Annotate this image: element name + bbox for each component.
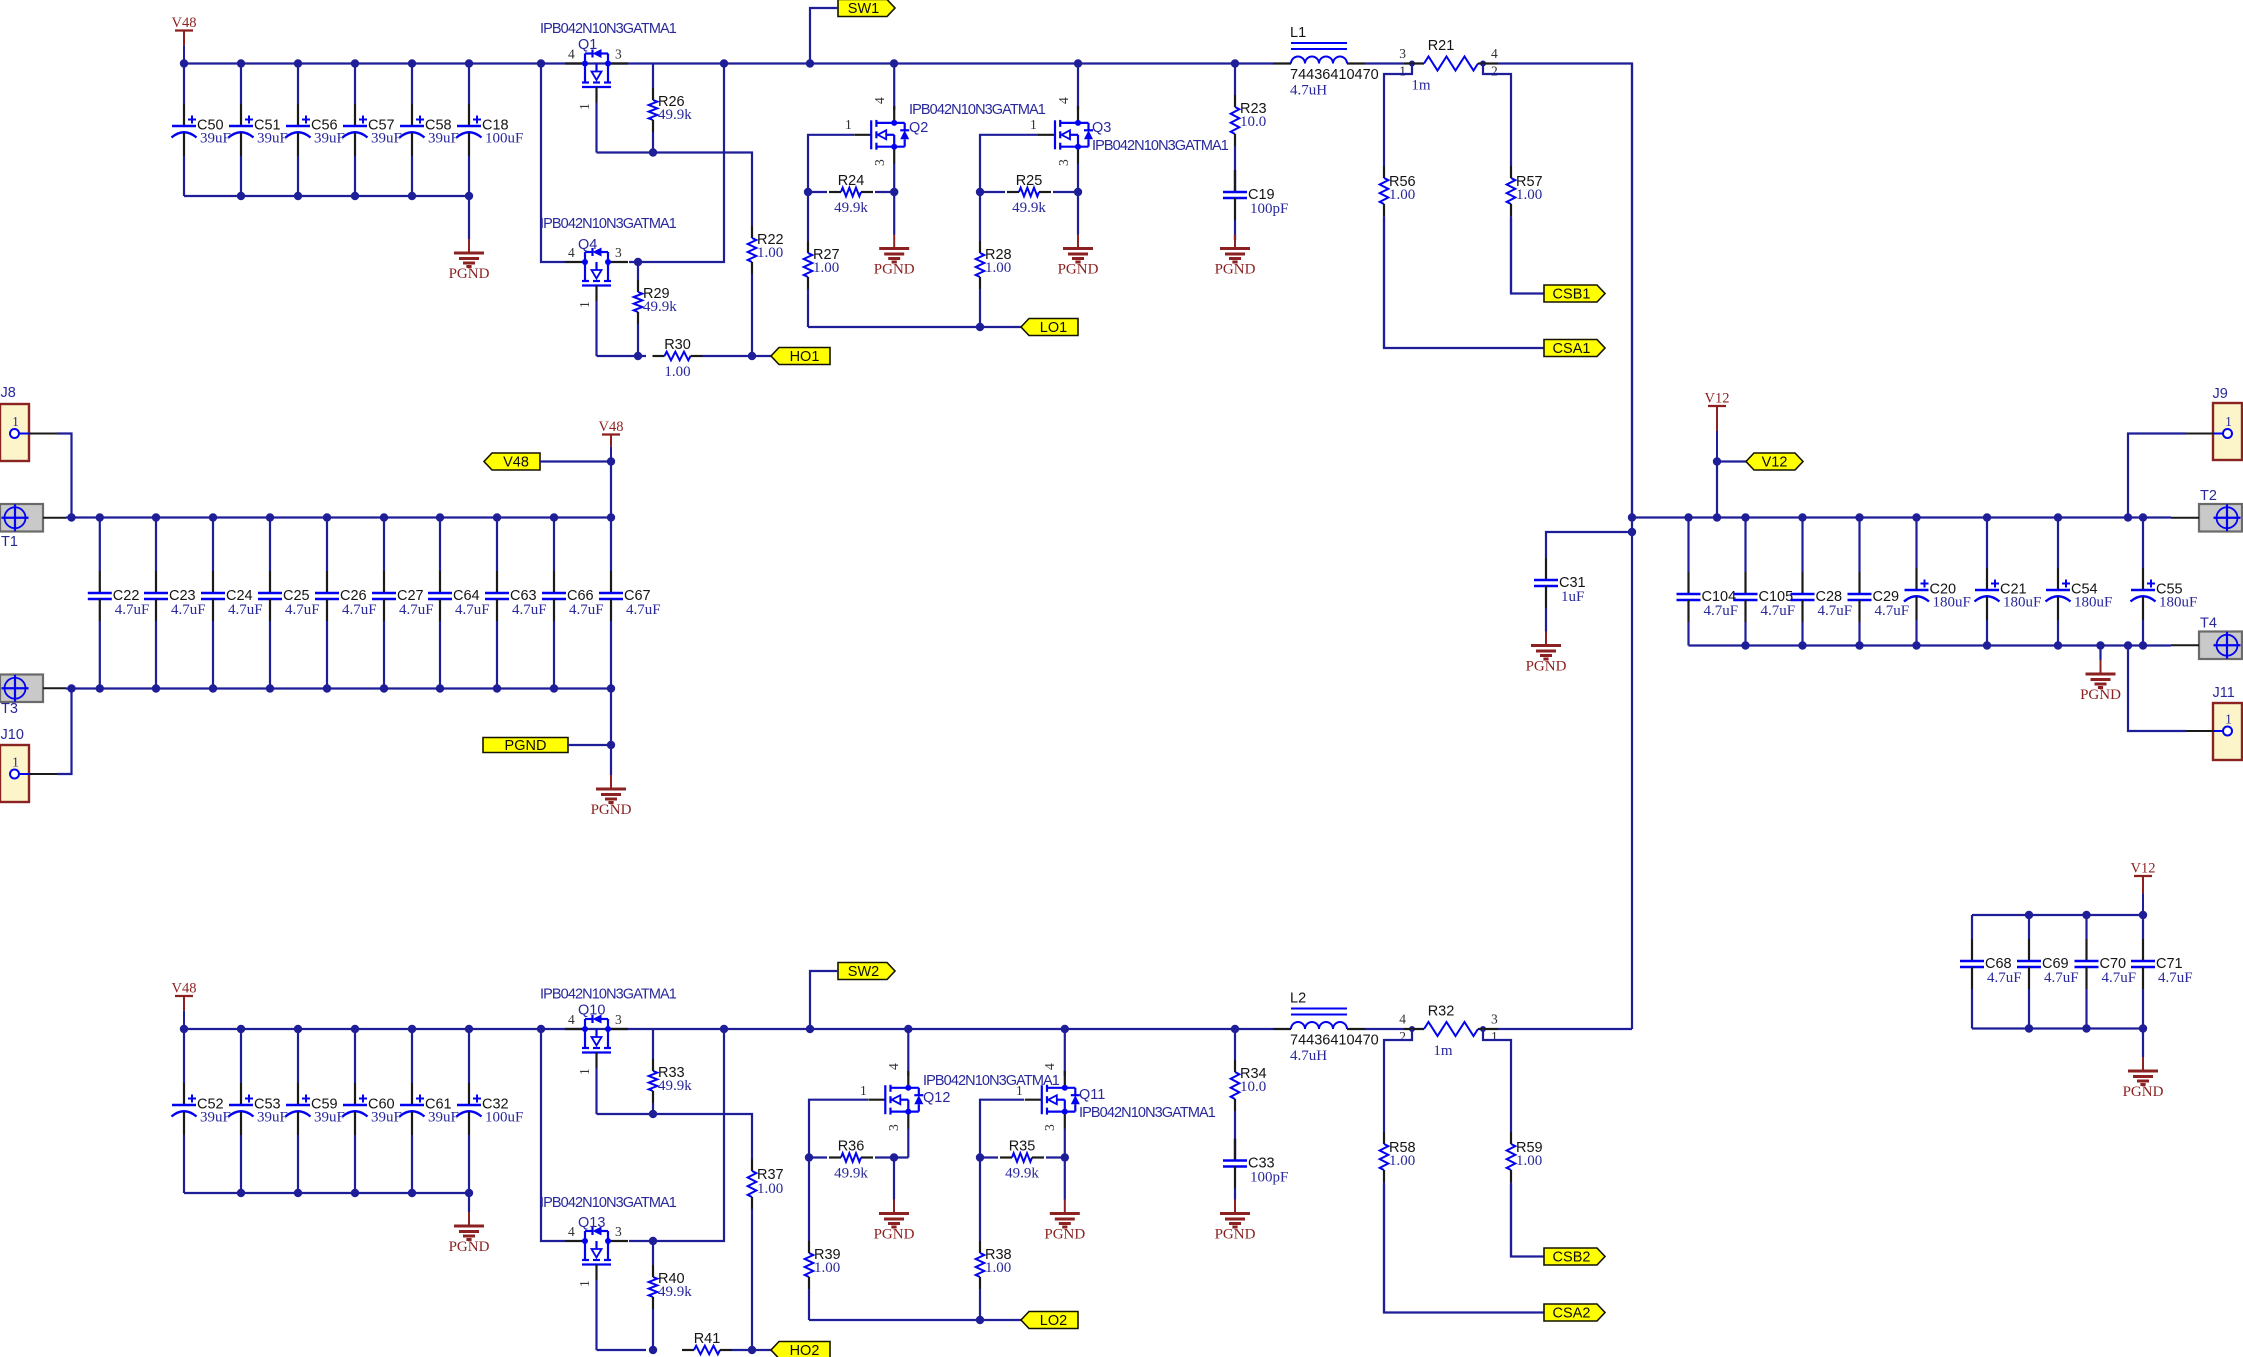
svg-text:3: 3: [872, 159, 887, 166]
svg-text:1: 1: [577, 301, 592, 308]
svg-text:180uF: 180uF: [2159, 595, 2197, 611]
svg-text:1m: 1m: [1411, 78, 1431, 94]
svg-text:1uF: 1uF: [1561, 589, 1584, 605]
svg-text:IPB042N10N3GATMA1: IPB042N10N3GATMA1: [540, 1195, 677, 1211]
svg-text:39uF: 39uF: [200, 131, 231, 147]
svg-text:4: 4: [568, 245, 575, 260]
svg-text:PGND: PGND: [2123, 1084, 2164, 1100]
svg-text:T3: T3: [1, 701, 18, 717]
svg-text:1.00: 1.00: [1516, 1153, 1542, 1169]
svg-text:39uF: 39uF: [371, 1110, 402, 1126]
svg-text:IPB042N10N3GATMA1: IPB042N10N3GATMA1: [909, 102, 1046, 118]
svg-text:4: 4: [1056, 97, 1071, 104]
svg-text:180uF: 180uF: [2003, 595, 2041, 611]
svg-text:4.7uF: 4.7uF: [342, 602, 377, 618]
svg-text:3: 3: [1056, 159, 1071, 166]
svg-text:R41: R41: [694, 1331, 721, 1347]
svg-text:4.7uF: 4.7uF: [626, 602, 661, 618]
svg-text:1.00: 1.00: [985, 1260, 1011, 1276]
svg-text:4.7uF: 4.7uF: [115, 602, 150, 618]
svg-text:39uF: 39uF: [314, 1110, 345, 1126]
svg-text:180uF: 180uF: [2074, 595, 2112, 611]
svg-text:4: 4: [568, 1012, 575, 1027]
svg-text:PGND: PGND: [2080, 687, 2121, 703]
svg-text:1.00: 1.00: [757, 245, 783, 261]
svg-text:PGND: PGND: [449, 266, 490, 282]
svg-text:R32: R32: [1428, 1004, 1455, 1020]
svg-text:PGND: PGND: [1215, 262, 1256, 278]
svg-text:HO2: HO2: [790, 1343, 820, 1357]
svg-text:4.7uF: 4.7uF: [512, 602, 547, 618]
svg-text:4: 4: [1491, 46, 1498, 61]
svg-text:49.9k: 49.9k: [1012, 200, 1046, 216]
svg-text:39uF: 39uF: [428, 131, 459, 147]
svg-text:L1: L1: [1290, 25, 1306, 41]
svg-text:1: 1: [577, 1068, 592, 1075]
svg-text:IPB042N10N3GATMA1: IPB042N10N3GATMA1: [540, 21, 677, 37]
svg-text:1: 1: [12, 414, 19, 429]
svg-text:V48: V48: [172, 15, 197, 31]
svg-text:J8: J8: [1, 385, 16, 401]
svg-text:V48: V48: [503, 455, 529, 471]
svg-text:3: 3: [1491, 1012, 1498, 1027]
svg-text:4.7uF: 4.7uF: [2102, 970, 2137, 986]
svg-text:49.9k: 49.9k: [834, 1166, 868, 1182]
svg-text:2: 2: [1491, 64, 1498, 79]
svg-text:100pF: 100pF: [1250, 1170, 1288, 1186]
svg-text:100pF: 100pF: [1250, 201, 1288, 217]
svg-text:J11: J11: [2213, 685, 2235, 701]
svg-text:L2: L2: [1290, 991, 1306, 1007]
svg-text:1.00: 1.00: [814, 1260, 840, 1276]
svg-text:49.9k: 49.9k: [658, 107, 692, 123]
svg-text:Q2: Q2: [909, 120, 928, 136]
svg-text:3: 3: [615, 1224, 622, 1239]
svg-text:4: 4: [1399, 1012, 1406, 1027]
svg-text:39uF: 39uF: [428, 1110, 459, 1126]
svg-text:1: 1: [845, 117, 852, 132]
svg-text:4.7uH: 4.7uH: [1290, 1048, 1327, 1064]
svg-text:Q13: Q13: [578, 1215, 605, 1231]
svg-text:1.00: 1.00: [1389, 1153, 1415, 1169]
svg-text:1: 1: [1399, 64, 1406, 79]
svg-text:IPB042N10N3GATMA1: IPB042N10N3GATMA1: [1079, 1105, 1216, 1121]
svg-text:39uF: 39uF: [257, 131, 288, 147]
svg-text:4.7uF: 4.7uF: [285, 602, 320, 618]
svg-text:4: 4: [886, 1063, 901, 1070]
svg-text:1: 1: [1016, 1083, 1023, 1098]
svg-text:4.7uF: 4.7uF: [399, 602, 434, 618]
svg-text:4: 4: [568, 1224, 575, 1239]
svg-text:CSB2: CSB2: [1553, 1250, 1591, 1266]
svg-text:49.9k: 49.9k: [834, 200, 868, 216]
svg-text:IPB042N10N3GATMA1: IPB042N10N3GATMA1: [923, 1073, 1060, 1089]
svg-text:1: 1: [2225, 712, 2232, 727]
svg-text:4.7uF: 4.7uF: [228, 602, 263, 618]
svg-text:180uF: 180uF: [1933, 595, 1971, 611]
svg-text:1.00: 1.00: [1389, 187, 1415, 203]
svg-text:V48: V48: [172, 981, 197, 997]
svg-text:100uF: 100uF: [485, 131, 523, 147]
svg-text:4: 4: [872, 97, 887, 104]
svg-text:R24: R24: [838, 173, 865, 189]
svg-text:1.00: 1.00: [1516, 187, 1542, 203]
svg-text:4.7uF: 4.7uF: [2158, 970, 2193, 986]
svg-text:PGND: PGND: [1215, 1227, 1256, 1243]
svg-text:V12: V12: [1705, 391, 1730, 407]
svg-text:PGND: PGND: [1058, 262, 1099, 278]
svg-text:Q12: Q12: [923, 1090, 950, 1106]
svg-text:PGND: PGND: [874, 1227, 915, 1243]
svg-text:49.9k: 49.9k: [658, 1078, 692, 1094]
svg-text:PGND: PGND: [874, 262, 915, 278]
svg-text:4.7uF: 4.7uF: [1875, 603, 1910, 619]
svg-text:4.7uF: 4.7uF: [1761, 603, 1796, 619]
svg-text:39uF: 39uF: [257, 1110, 288, 1126]
svg-text:Q1: Q1: [578, 37, 597, 53]
svg-text:4.7uH: 4.7uH: [1290, 83, 1327, 99]
svg-text:39uF: 39uF: [314, 131, 345, 147]
svg-text:4.7uF: 4.7uF: [2044, 970, 2079, 986]
svg-text:100uF: 100uF: [485, 1110, 523, 1126]
svg-text:1.00: 1.00: [757, 1181, 783, 1197]
svg-text:IPB042N10N3GATMA1: IPB042N10N3GATMA1: [540, 987, 677, 1003]
svg-text:3: 3: [886, 1124, 901, 1131]
svg-text:1.00: 1.00: [813, 260, 839, 276]
svg-text:1: 1: [12, 755, 19, 770]
svg-text:PGND: PGND: [591, 802, 632, 818]
svg-text:10.0: 10.0: [1240, 1079, 1266, 1095]
svg-text:39uF: 39uF: [371, 131, 402, 147]
svg-text:PGND: PGND: [505, 738, 547, 754]
svg-text:3: 3: [1042, 1124, 1057, 1131]
svg-text:V12: V12: [2131, 861, 2156, 877]
svg-text:3: 3: [1399, 46, 1406, 61]
svg-text:1: 1: [577, 1280, 592, 1287]
svg-text:4: 4: [1042, 1063, 1057, 1070]
svg-text:V48: V48: [599, 419, 624, 435]
svg-text:3: 3: [615, 1012, 622, 1027]
svg-text:PGND: PGND: [449, 1239, 490, 1255]
svg-text:J10: J10: [1, 727, 24, 743]
svg-text:T1: T1: [1, 534, 18, 550]
svg-text:CSB1: CSB1: [1553, 287, 1591, 303]
svg-text:Q10: Q10: [578, 1003, 605, 1019]
svg-text:CSA2: CSA2: [1553, 1306, 1591, 1322]
svg-text:IPB042N10N3GATMA1: IPB042N10N3GATMA1: [540, 216, 677, 232]
svg-text:4.7uF: 4.7uF: [455, 602, 490, 618]
svg-text:R21: R21: [1428, 38, 1455, 54]
svg-text:R36: R36: [838, 1139, 865, 1155]
svg-text:39uF: 39uF: [200, 1110, 231, 1126]
svg-text:49.9k: 49.9k: [658, 1284, 692, 1300]
svg-text:1.00: 1.00: [985, 260, 1011, 276]
svg-text:LO1: LO1: [1040, 320, 1067, 336]
svg-text:1: 1: [577, 103, 592, 110]
svg-text:J9: J9: [2213, 386, 2228, 402]
svg-text:R30: R30: [664, 337, 691, 353]
svg-text:4.7uF: 4.7uF: [1987, 970, 2022, 986]
svg-text:R25: R25: [1016, 173, 1043, 189]
svg-text:IPB042N10N3GATMA1: IPB042N10N3GATMA1: [1092, 138, 1229, 154]
svg-text:PGND: PGND: [1044, 1227, 1085, 1243]
svg-text:Q11: Q11: [1079, 1087, 1105, 1103]
svg-text:3: 3: [615, 47, 622, 62]
svg-text:SW2: SW2: [848, 964, 879, 980]
svg-text:4.7uF: 4.7uF: [569, 602, 604, 618]
svg-text:3: 3: [615, 245, 622, 260]
svg-text:PGND: PGND: [1526, 659, 1567, 675]
svg-text:10.0: 10.0: [1240, 114, 1266, 130]
svg-text:T4: T4: [2200, 616, 2217, 632]
svg-text:2: 2: [1399, 1029, 1406, 1044]
svg-text:1.00: 1.00: [664, 364, 690, 380]
svg-text:4: 4: [568, 47, 575, 62]
svg-text:4.7uF: 4.7uF: [1818, 603, 1853, 619]
svg-text:1: 1: [2225, 414, 2232, 429]
svg-text:1: 1: [860, 1083, 867, 1098]
svg-text:SW1: SW1: [848, 1, 879, 17]
svg-text:1: 1: [1030, 117, 1037, 132]
svg-text:R35: R35: [1009, 1139, 1036, 1155]
svg-text:74436410470: 74436410470: [1290, 1033, 1379, 1049]
svg-text:49.9k: 49.9k: [643, 299, 677, 315]
svg-text:4.7uF: 4.7uF: [171, 602, 206, 618]
svg-text:1m: 1m: [1433, 1043, 1453, 1059]
svg-text:Q4: Q4: [578, 237, 597, 253]
svg-text:49.9k: 49.9k: [1005, 1166, 1039, 1182]
svg-text:HO1: HO1: [790, 349, 820, 365]
svg-text:74436410470: 74436410470: [1290, 67, 1379, 83]
svg-text:4.7uF: 4.7uF: [1704, 603, 1739, 619]
svg-text:Q3: Q3: [1092, 120, 1111, 136]
svg-text:T2: T2: [2200, 488, 2217, 504]
svg-text:1: 1: [1491, 1029, 1498, 1044]
svg-text:V12: V12: [1762, 455, 1788, 471]
svg-text:LO2: LO2: [1040, 1313, 1067, 1329]
svg-text:CSA1: CSA1: [1553, 341, 1591, 357]
